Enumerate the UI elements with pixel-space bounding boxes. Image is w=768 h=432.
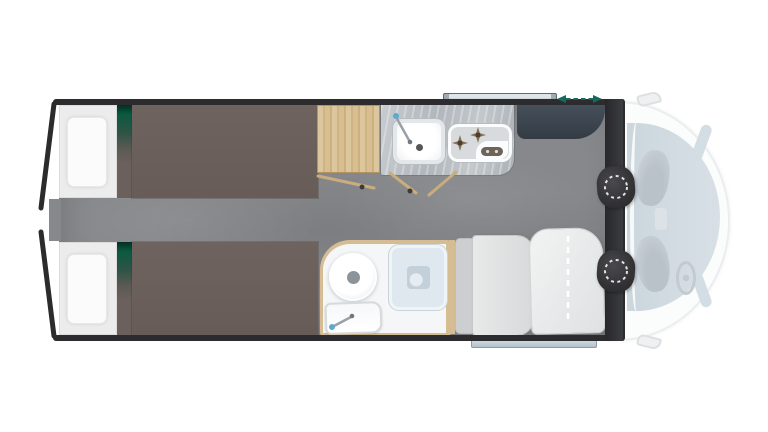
steering-wheel-icon bbox=[676, 261, 696, 295]
mirror-bottom-icon bbox=[636, 333, 662, 350]
swivel-seat-top bbox=[596, 165, 637, 210]
body-walls bbox=[53, 99, 625, 341]
floorplan-canvas bbox=[0, 0, 768, 432]
mirror-top-icon bbox=[636, 90, 662, 107]
cab-bulkhead-wall bbox=[605, 99, 623, 341]
swivel-seat-bottom bbox=[596, 249, 637, 294]
center-console bbox=[655, 208, 667, 230]
